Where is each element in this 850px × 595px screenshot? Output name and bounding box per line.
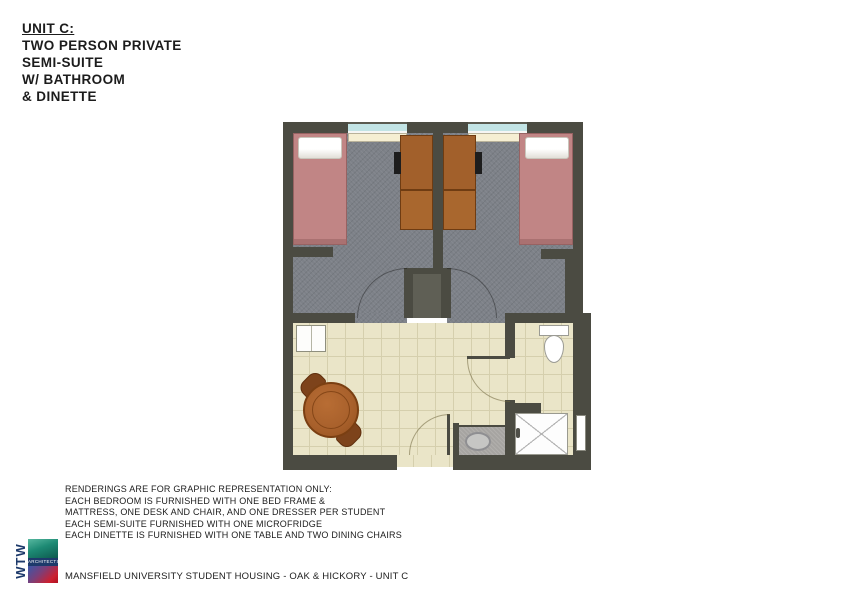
unit-subtitle-4: & DINETTE — [22, 88, 182, 105]
vanity-counter — [459, 425, 505, 455]
wall-stub-left-bed — [293, 247, 333, 257]
unit-subtitle-1: TWO PERSON PRIVATE — [22, 37, 182, 54]
shower-head — [516, 428, 520, 438]
floor-plan — [283, 122, 603, 470]
window-glass — [468, 124, 527, 131]
logo-teal-square — [28, 539, 58, 558]
central-closet-interior — [413, 274, 441, 318]
disclaimer-line: EACH SEMI-SUITE FURNISHED WITH ONE MICRO… — [65, 519, 402, 531]
wall-west — [283, 122, 293, 470]
bed-left — [293, 133, 347, 245]
sheet-footer-title: MANSFIELD UNIVERSITY STUDENT HOUSING - O… — [65, 571, 408, 582]
disclaimer-block: RENDERINGS ARE FOR GRAPHIC REPRESENTATIO… — [65, 484, 402, 542]
desk-chair-left — [394, 152, 401, 174]
bed-right — [519, 133, 573, 245]
microfridge-door-split — [311, 326, 312, 351]
unit-subtitle-3: W/ BATHROOM — [22, 71, 182, 88]
logo-red-square — [28, 566, 58, 583]
disclaimer-line: MATTRESS, ONE DESK AND CHAIR, AND ONE DR… — [65, 507, 402, 519]
window-glass — [348, 124, 407, 131]
pillow-left — [298, 137, 342, 159]
unit-title: UNIT C: — [22, 20, 182, 37]
microfridge — [296, 325, 326, 352]
wall-south-left — [283, 455, 397, 470]
wall-right-closet — [565, 259, 573, 313]
bed-left-footboard — [294, 239, 346, 244]
dining-table — [303, 382, 359, 438]
wall-stub-right-bed — [541, 249, 573, 259]
wall-bathroom-west-upper — [505, 323, 515, 358]
unit-title-block: UNIT C: TWO PERSON PRIVATE SEMI-SUITE W/… — [22, 20, 182, 105]
desk-dresser-right — [443, 135, 476, 230]
floor-plan-sheet: UNIT C: TWO PERSON PRIVATE SEMI-SUITE W/… — [0, 0, 850, 595]
dresser-left — [401, 191, 432, 229]
central-closet — [407, 268, 447, 318]
logo-architects-label: ARCHITECTS — [28, 558, 58, 566]
shower-stall — [515, 413, 568, 455]
unit-subtitle-2: SEMI-SUITE — [22, 54, 182, 71]
wall-niche — [576, 415, 586, 451]
wall-bathroom-north — [505, 313, 583, 323]
window-left — [348, 122, 407, 142]
wall-dinette-left — [293, 313, 355, 323]
logo-wtw-letters: WTW — [14, 537, 28, 585]
disclaimer-line: EACH BEDROOM IS FURNISHED WITH ONE BED F… — [65, 496, 402, 508]
wall-south-right — [453, 455, 591, 470]
wall-shower-enclosure — [515, 403, 541, 413]
desk-chair-right — [475, 152, 482, 174]
desk-dresser-left — [400, 135, 433, 230]
architect-logo: WTW ARCHITECTS — [14, 537, 58, 584]
disclaimer-line: EACH DINETTE IS FURNISHED WITH ONE TABLE… — [65, 530, 402, 542]
dining-table-ring — [312, 391, 350, 429]
wall-bathroom-west-lower — [505, 400, 515, 455]
pillow-right — [525, 137, 569, 159]
vanity-sink — [465, 432, 491, 451]
entry-threshold — [397, 455, 453, 467]
dresser-right — [444, 191, 475, 229]
disclaimer-line: RENDERINGS ARE FOR GRAPHIC REPRESENTATIO… — [65, 484, 402, 496]
bed-right-footboard — [520, 239, 572, 244]
wall-east-bedroom — [573, 122, 583, 323]
wall-bedroom-divider — [433, 122, 443, 268]
window-sill — [348, 133, 407, 142]
